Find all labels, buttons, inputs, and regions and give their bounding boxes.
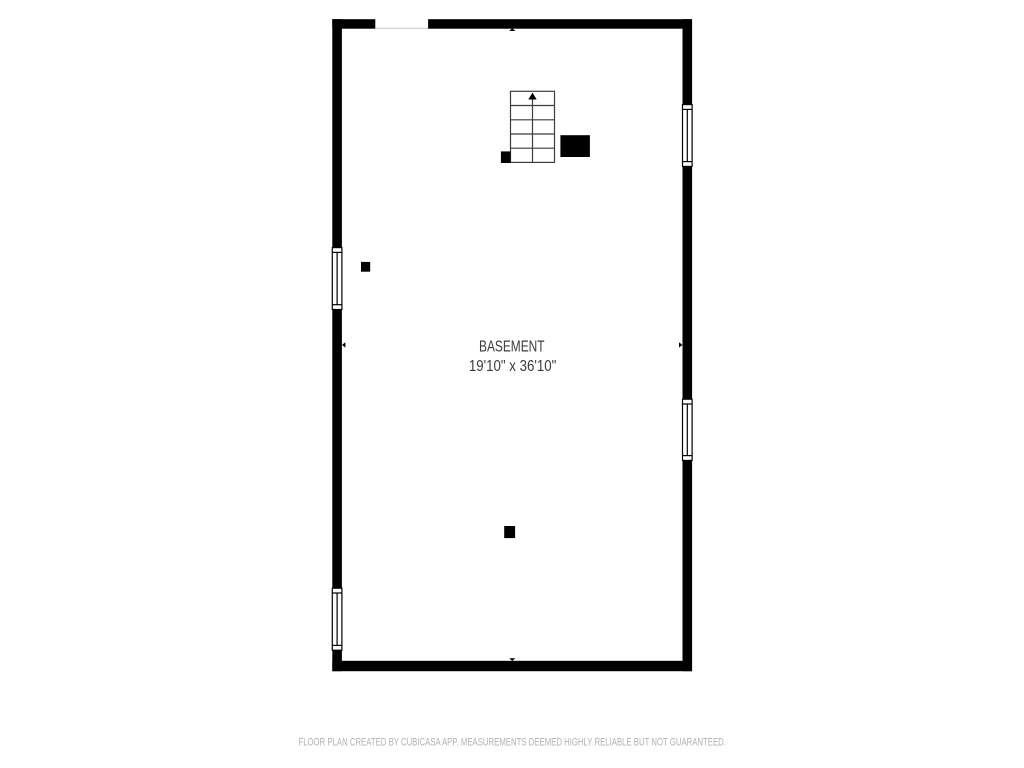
svg-text:FLOOR PLAN CREATED BY CUBICASA: FLOOR PLAN CREATED BY CUBICASA APP. MEAS… xyxy=(298,737,726,749)
svg-text:19'10" x 36'10": 19'10" x 36'10" xyxy=(469,358,557,375)
svg-text:BASEMENT: BASEMENT xyxy=(479,338,545,355)
